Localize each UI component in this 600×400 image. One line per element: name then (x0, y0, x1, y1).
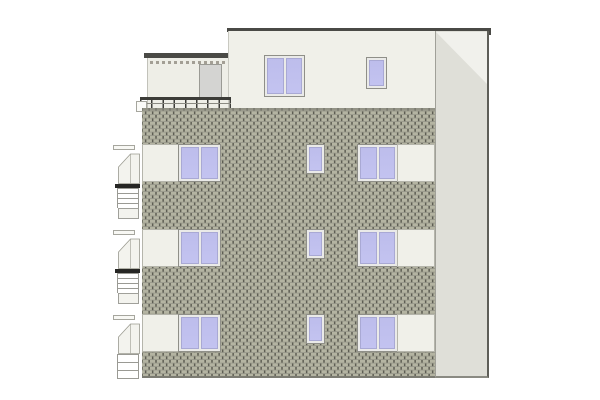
window-pane (201, 147, 219, 179)
window-pane (379, 232, 396, 264)
window-pane (267, 58, 284, 94)
window-pane (379, 317, 396, 349)
window-sill-f1 (113, 315, 135, 320)
oriel-bay-f1 (118, 323, 140, 354)
balcony-panel-f3 (118, 208, 139, 219)
railing-top-bar (140, 97, 231, 100)
balcony-railing-f3 (117, 188, 139, 208)
window-pane (309, 317, 322, 341)
window-small-f3 (306, 144, 325, 174)
balcony-railing-f2 (117, 273, 139, 293)
window-pane (309, 147, 322, 171)
window-pane (360, 147, 377, 179)
side-panel-highlight (436, 32, 487, 84)
spandrel-panel-right-f3 (397, 144, 435, 182)
penthouse-door (199, 64, 222, 100)
window-pane (181, 317, 199, 349)
oriel-bay-f3 (118, 153, 140, 184)
spandrel-panel-right-f1 (397, 314, 435, 352)
window-pane (201, 317, 219, 349)
window-double-top (264, 55, 305, 97)
window-pane (286, 58, 303, 94)
railing-mid-bar (140, 103, 231, 104)
window-single-top (366, 57, 387, 89)
window-pane (360, 232, 377, 264)
window-double-right-f3 (357, 144, 398, 182)
main-facade (228, 31, 435, 108)
window-sill-f2 (113, 230, 135, 235)
elevation-stage (0, 0, 600, 400)
balcony-railing-f1 (117, 354, 139, 379)
window-double-left-f1 (178, 314, 221, 352)
terrace-railing (140, 97, 231, 108)
window-small-f2 (306, 229, 325, 259)
window-double-right-f1 (357, 314, 398, 352)
window-double-right-f2 (357, 229, 398, 267)
window-pane (379, 147, 396, 179)
side-return-panel (435, 31, 489, 378)
window-pane (360, 317, 377, 349)
window-small-f1 (306, 314, 325, 344)
window-pane (181, 147, 199, 179)
window-double-left-f2 (178, 229, 221, 267)
oriel-bay-f2 (118, 238, 140, 269)
window-sill-f3 (113, 145, 135, 150)
window-pane (181, 232, 199, 264)
window-pane (201, 232, 219, 264)
balcony-panel-f2 (118, 293, 139, 304)
window-double-left-f3 (178, 144, 221, 182)
window-pane (369, 60, 384, 86)
spandrel-panel-right-f2 (397, 229, 435, 267)
window-pane (309, 232, 322, 256)
